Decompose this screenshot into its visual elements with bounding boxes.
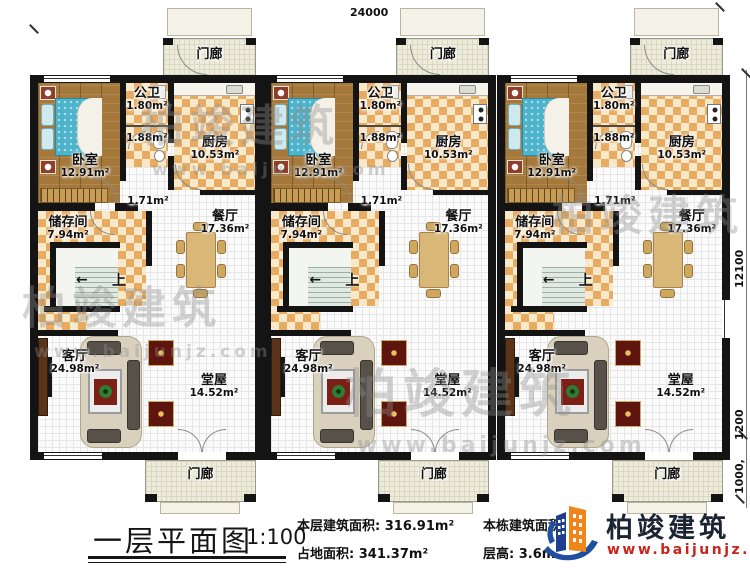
bed-blanket xyxy=(77,98,102,156)
kitchen-sink xyxy=(459,85,476,94)
room-label-bedroom: 卧室 12.91m² xyxy=(287,154,349,180)
plant xyxy=(566,385,579,398)
dining-chair xyxy=(193,289,208,298)
dimension-right-porch: 1000, xyxy=(733,446,747,494)
wall xyxy=(505,330,585,336)
room-label-toilet: 公卫 1.80m² xyxy=(359,87,401,113)
wall xyxy=(38,203,95,211)
side-table xyxy=(615,340,641,366)
bed-pillow xyxy=(508,128,521,150)
title-underline xyxy=(88,562,286,563)
plan-title: 一层平面图 xyxy=(93,518,253,560)
room-label-living: 客厅 24.98m² xyxy=(511,350,573,376)
wall xyxy=(593,125,635,127)
stair-direction-arrow: ← xyxy=(543,272,575,288)
side-table xyxy=(381,340,407,366)
kitchen-stove xyxy=(707,104,721,124)
dining-chair xyxy=(176,240,185,254)
building-unit-1: ← 上 xyxy=(30,8,263,516)
wall-stub xyxy=(378,452,387,460)
wall xyxy=(722,75,730,460)
building-unit-2: ← 上 xyxy=(263,8,496,516)
room-label-kitchen: 厨房 10.53m² xyxy=(647,136,717,162)
dining-chair xyxy=(409,264,418,278)
stair-direction-arrow: ← xyxy=(309,272,341,288)
wall-stub xyxy=(714,452,722,460)
room-label-bath: 1.88m² xyxy=(359,133,401,145)
side-table xyxy=(148,401,174,427)
wall xyxy=(517,242,587,248)
wall xyxy=(38,330,118,336)
wall xyxy=(50,242,56,312)
toilet-fixture xyxy=(621,150,632,162)
dining-table xyxy=(419,232,449,288)
stair-up-label: 上 xyxy=(345,270,367,288)
wall xyxy=(200,190,256,195)
room-label-kitchen: 厨房 10.53m² xyxy=(180,136,250,162)
bed-pillow xyxy=(274,128,287,150)
wall xyxy=(126,125,168,127)
stat-floor-area: 本层建筑面积: 316.91m² xyxy=(297,515,454,534)
room-label-main-hall: 堂屋 14.52m² xyxy=(182,374,246,400)
sofa-cushion xyxy=(127,360,140,430)
window xyxy=(44,453,102,459)
title-underline xyxy=(88,556,286,559)
dining-chair xyxy=(684,264,693,278)
room-label-main-hall: 堂屋 14.52m² xyxy=(649,374,713,400)
stair-direction-arrow: ← xyxy=(76,272,108,288)
sofa-cushion xyxy=(87,429,121,443)
wall xyxy=(401,156,407,190)
wall xyxy=(271,203,328,211)
bed-pillow xyxy=(41,128,54,150)
room-label-storage: 储存间 7.94m² xyxy=(503,216,567,242)
dining-chair xyxy=(684,240,693,254)
room-label-porch-bottom: 门廊 xyxy=(612,468,723,482)
wall-stub xyxy=(479,38,489,45)
room-label-toilet: 公卫 1.80m² xyxy=(126,87,168,113)
kitchen-sink xyxy=(693,85,710,94)
kitchen-stove xyxy=(240,104,254,124)
side-table xyxy=(615,401,641,427)
wall xyxy=(226,452,263,460)
room-label-living: 客厅 24.98m² xyxy=(277,350,339,376)
wall xyxy=(283,242,353,248)
window xyxy=(511,453,569,459)
dining-chair xyxy=(450,240,459,254)
room-label-storage: 储存间 7.94m² xyxy=(36,216,100,242)
wall xyxy=(635,156,641,190)
room-label-porch-top: 门廊 xyxy=(396,48,489,62)
wall xyxy=(667,190,723,195)
wall xyxy=(433,190,489,195)
entry-step-top xyxy=(400,8,485,36)
side-table xyxy=(381,401,407,427)
dimension-right-lower: 1200 xyxy=(733,398,747,440)
dimension-right-height: 12100 xyxy=(733,222,747,288)
dining-chair xyxy=(426,289,441,298)
wall-stub xyxy=(612,452,621,460)
room-label-bath: 1.88m² xyxy=(126,133,168,145)
wall xyxy=(617,452,645,460)
kitchen-stove xyxy=(473,104,487,124)
wall-stub xyxy=(480,452,488,460)
wall-stub xyxy=(713,38,723,45)
wall xyxy=(511,306,587,312)
wall-stub xyxy=(163,38,173,45)
wall xyxy=(401,83,407,143)
sofa-cushion xyxy=(594,360,607,430)
bed-blanket xyxy=(310,98,335,156)
building-unit-3: ← 上 xyxy=(497,8,730,516)
wall-stub xyxy=(396,38,406,45)
dimension-top-width: 24000 xyxy=(350,6,406,20)
room-label-porch-top: 门廊 xyxy=(163,48,256,62)
dining-chair xyxy=(643,264,652,278)
dining-chair xyxy=(643,240,652,254)
title-block: 一层平面图 1:100 本层建筑面积: 316.91m² 占地面积: 341.3… xyxy=(0,498,750,570)
wall-stub xyxy=(247,452,255,460)
wall xyxy=(613,211,619,266)
floor-plan: ← 上 xyxy=(0,0,750,522)
room-label-living: 客厅 24.98m² xyxy=(44,350,106,376)
room-label-porch-bottom: 门廊 xyxy=(145,468,256,482)
window xyxy=(277,453,335,459)
sofa-cushion xyxy=(360,360,373,430)
room-label-bath: 1.88m² xyxy=(593,133,635,145)
stair-up-label: 上 xyxy=(579,270,601,288)
dining-chair xyxy=(450,264,459,278)
side-table xyxy=(148,340,174,366)
wall xyxy=(497,75,505,460)
wall xyxy=(263,75,271,460)
wall xyxy=(283,242,289,312)
logo-website-url: www.baijunjz.com xyxy=(607,542,750,558)
room-label-dining: 餐厅 17.36m² xyxy=(427,210,489,236)
window xyxy=(277,76,343,82)
kitchen-counter xyxy=(407,83,488,96)
units-container: ← 上 xyxy=(30,8,730,522)
wall xyxy=(146,211,152,266)
dining-table xyxy=(186,232,216,288)
wall xyxy=(379,211,385,266)
wall xyxy=(488,75,496,460)
wall xyxy=(50,242,120,248)
wall xyxy=(150,452,178,460)
room-label-bedroom: 卧室 12.91m² xyxy=(54,154,116,180)
wall xyxy=(277,306,353,312)
logo-company-name: 柏竣建筑 xyxy=(606,506,730,545)
room-label-storage: 储存间 7.94m² xyxy=(269,216,333,242)
bed-pillow xyxy=(274,104,287,126)
wall-stub xyxy=(630,38,640,45)
window xyxy=(44,76,110,82)
bed-blanket xyxy=(544,98,569,156)
room-label-toilet: 公卫 1.80m² xyxy=(593,87,635,113)
dimension-line-right xyxy=(746,70,747,508)
window xyxy=(722,300,730,338)
room-label-bedroom: 卧室 12.91m² xyxy=(521,154,583,180)
wall xyxy=(635,83,641,143)
wall xyxy=(271,330,351,336)
wall xyxy=(168,156,174,190)
room-label-porch-bottom: 门廊 xyxy=(378,468,489,482)
wall xyxy=(30,75,38,460)
sofa-cushion xyxy=(554,429,588,443)
kitchen-sink xyxy=(226,85,243,94)
room-label-dining: 餐厅 17.36m² xyxy=(661,210,723,236)
stat-footprint-area: 占地面积: 341.37m² xyxy=(297,543,428,562)
room-label-hall: 1.71m² xyxy=(591,196,639,208)
dining-chair xyxy=(217,240,226,254)
dining-chair xyxy=(217,264,226,278)
dining-chair xyxy=(176,264,185,278)
bed-pillow xyxy=(508,104,521,126)
wall xyxy=(44,306,120,312)
dining-table xyxy=(653,232,683,288)
wall xyxy=(168,83,174,143)
window xyxy=(511,76,577,82)
wall xyxy=(505,203,562,211)
room-label-kitchen: 厨房 10.53m² xyxy=(413,136,483,162)
wall xyxy=(359,125,401,127)
nightstand xyxy=(40,86,56,100)
room-label-hall: 1.71m² xyxy=(124,196,172,208)
entry-step-top xyxy=(167,8,252,36)
room-label-hall: 1.71m² xyxy=(357,196,405,208)
company-logo: 柏竣建筑 www.baijunjz.com xyxy=(540,500,750,570)
wall-stub xyxy=(246,38,256,45)
toilet-fixture xyxy=(154,150,165,162)
wall xyxy=(693,452,730,460)
bed-pillow xyxy=(41,104,54,126)
room-label-main-hall: 堂屋 14.52m² xyxy=(415,374,479,400)
wall-stub xyxy=(145,452,154,460)
wall xyxy=(383,452,411,460)
wall xyxy=(517,242,523,312)
nightstand xyxy=(273,86,289,100)
dining-chair xyxy=(660,289,675,298)
sofa-cushion xyxy=(320,429,354,443)
wall xyxy=(459,452,496,460)
plant xyxy=(99,385,112,398)
stair-up-label: 上 xyxy=(112,270,134,288)
nightstand xyxy=(507,86,523,100)
room-label-porch-top: 门廊 xyxy=(630,48,723,62)
entry-step-top xyxy=(634,8,719,36)
wall xyxy=(255,75,263,460)
logo-mark-icon xyxy=(540,500,602,566)
room-label-dining: 餐厅 17.36m² xyxy=(194,210,256,236)
dining-chair xyxy=(409,240,418,254)
